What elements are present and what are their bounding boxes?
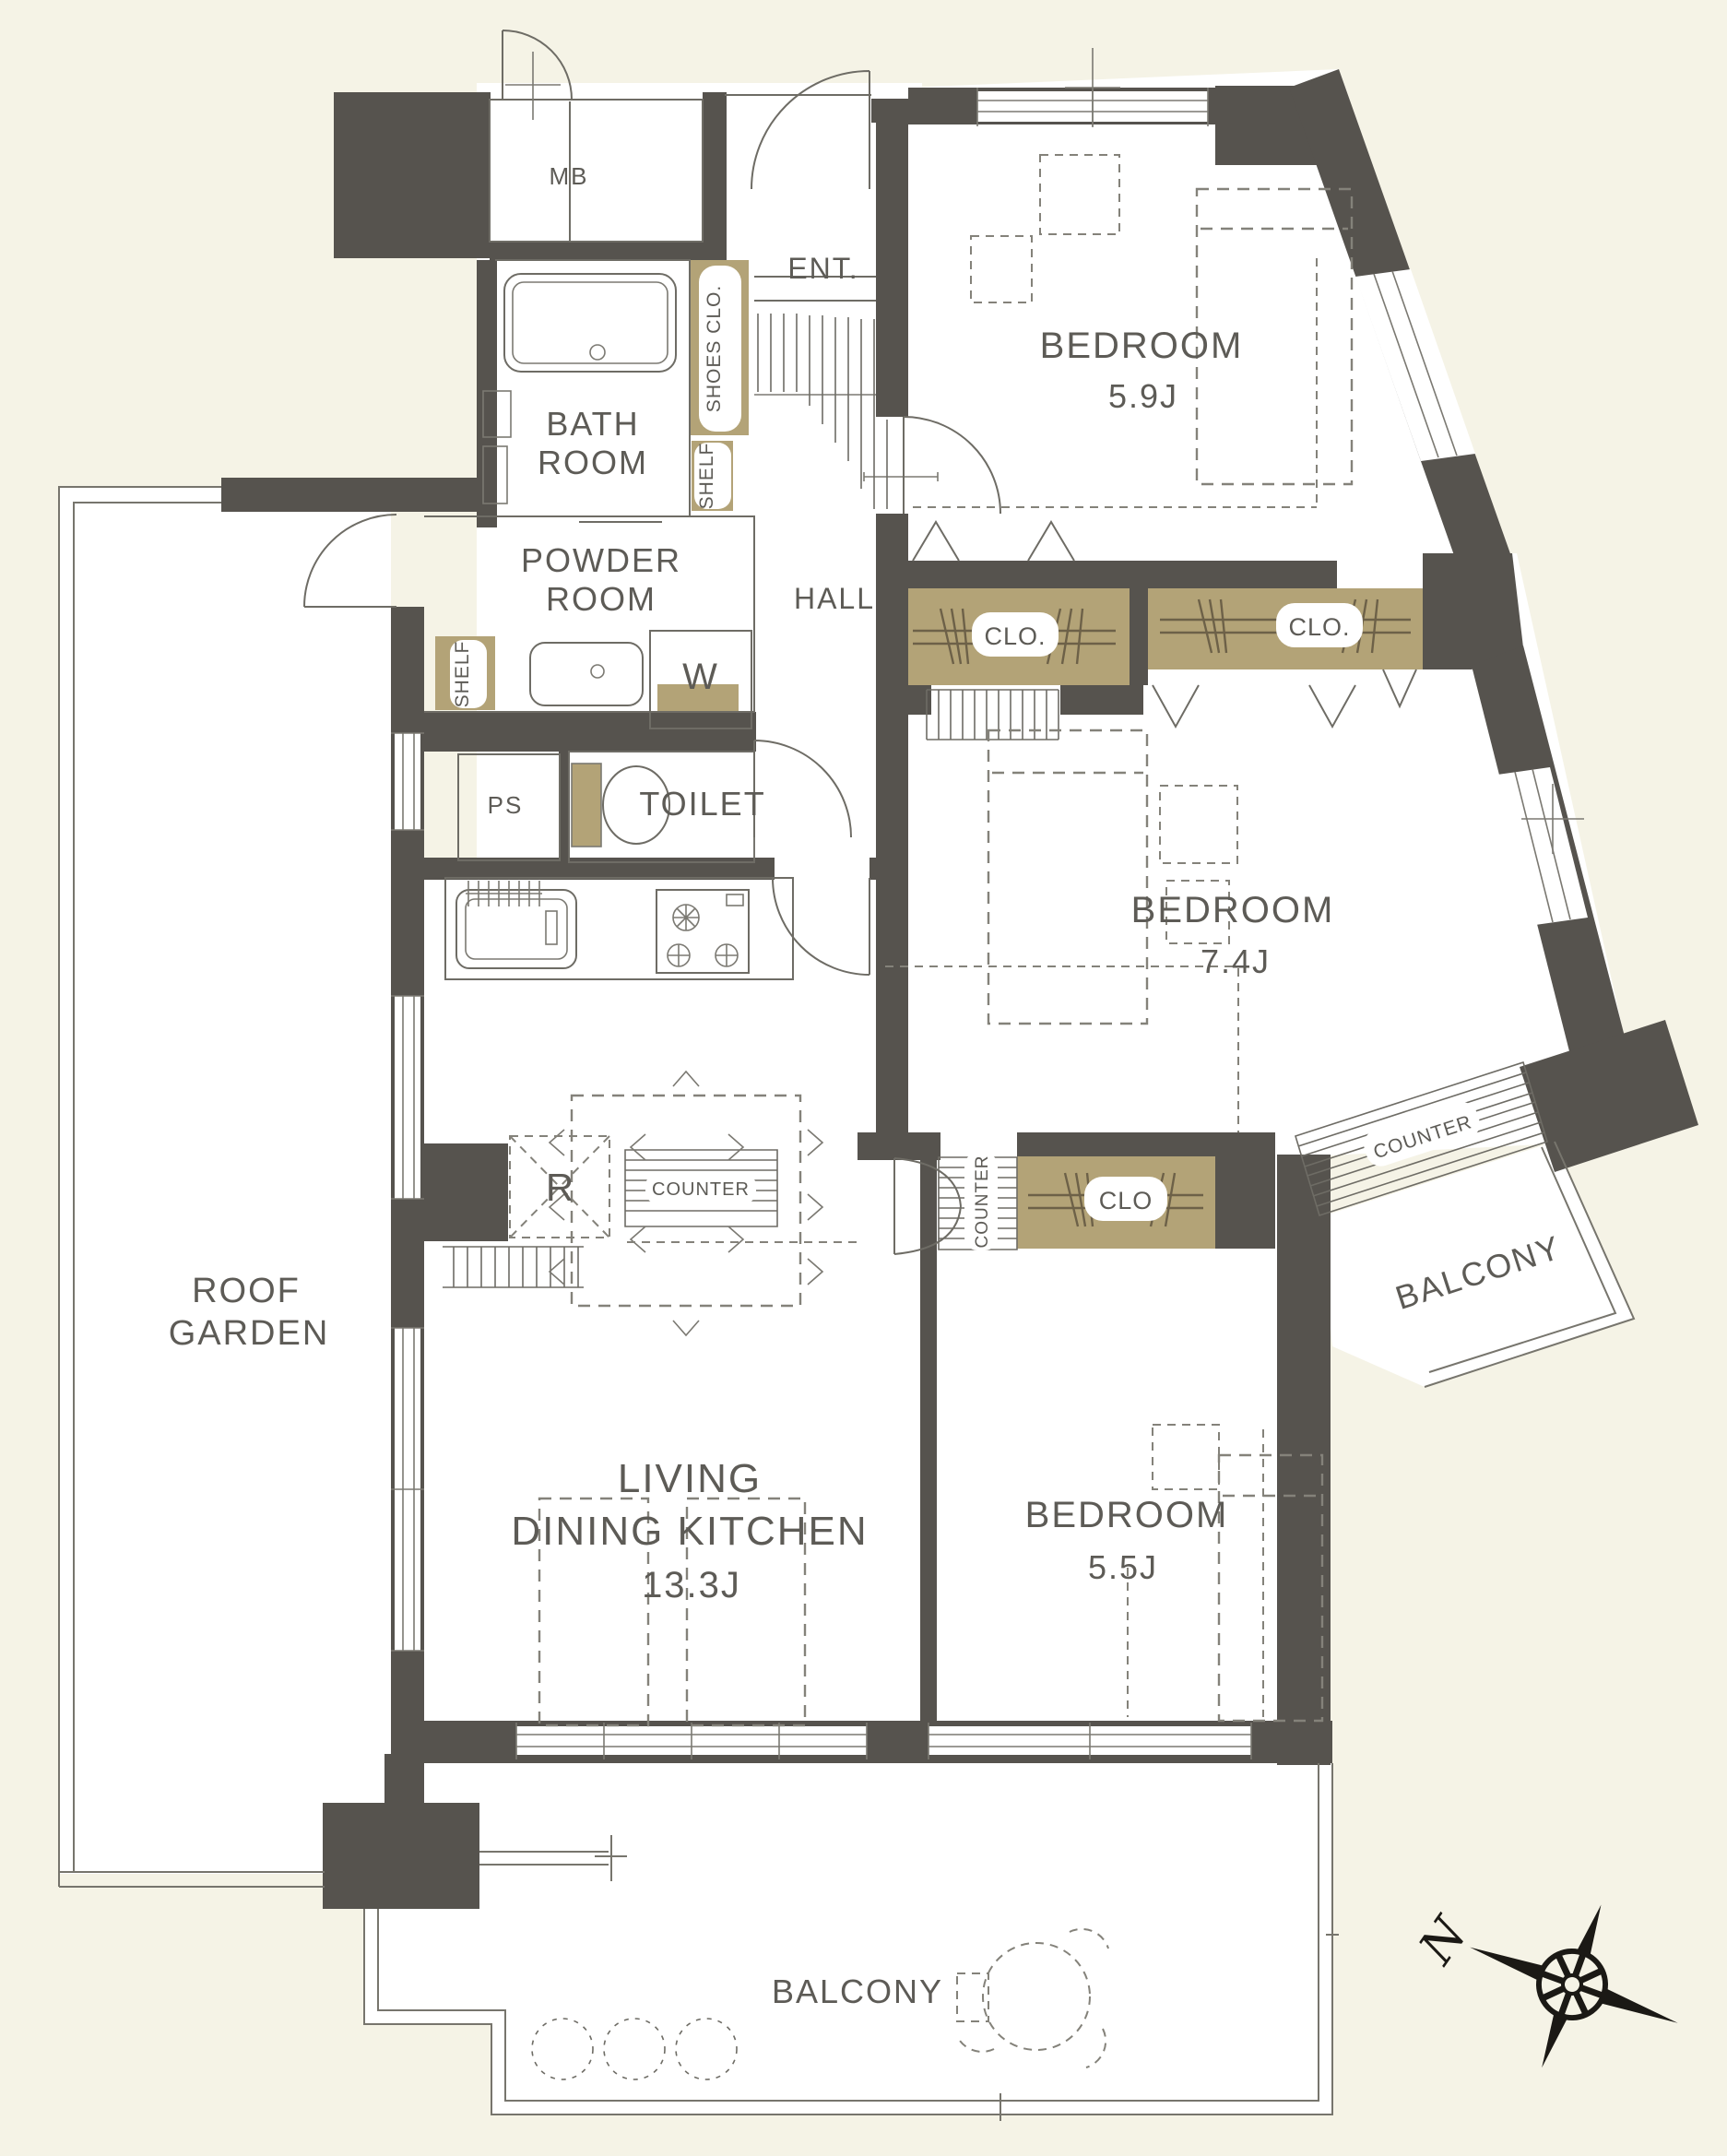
- ldk-label-1: LIVING: [618, 1456, 762, 1501]
- powder-label-2: ROOM: [546, 580, 656, 618]
- ldk-south-window: [516, 1723, 867, 1759]
- ldk-label-2: DINING KITCHEN: [511, 1509, 868, 1554]
- toilet-label: TOILET: [639, 785, 765, 823]
- bedroom3-label: BEDROOM: [1025, 1495, 1229, 1535]
- bedroom3-south-window: [929, 1723, 1251, 1759]
- roof-garden-rail-bottom: [59, 1872, 325, 1887]
- bedroom3-counter-label: COUNTER: [973, 1155, 992, 1249]
- washing-machine-label: W: [682, 657, 719, 697]
- roof-garden-label-1: ROOF: [192, 1272, 301, 1310]
- compass: N: [1408, 1867, 1707, 2106]
- closet2-label: CLO.: [1288, 613, 1350, 641]
- bedroom2-label: BEDROOM: [1131, 890, 1335, 930]
- shelf-lower-label: SHELF: [452, 641, 473, 708]
- toilet-tank: [572, 764, 601, 847]
- bedroom1-size: 5.9J: [1108, 377, 1178, 415]
- ldk-size: 13.3J: [642, 1565, 741, 1605]
- floor-plan-canvas: MB ENT. SHOES CLO. SHELF SHELF BATH ROOM…: [0, 0, 1727, 2156]
- hall-label: HALL: [794, 582, 875, 615]
- compass-north-label: N: [1408, 1906, 1480, 1975]
- powder-label-1: POWDER: [521, 541, 681, 579]
- floor-plan-drawing: MB ENT. SHOES CLO. SHELF SHELF BATH ROOM…: [0, 0, 1727, 2156]
- balcony-south-label: BALCONY: [772, 1972, 943, 2010]
- bath-label-2: ROOM: [538, 444, 648, 481]
- closet1-label: CLO.: [984, 622, 1046, 650]
- bedroom2-size: 7.4J: [1201, 942, 1271, 980]
- meter-box-label: MB: [550, 162, 589, 190]
- pipe-space-label: PS: [488, 791, 524, 819]
- refrigerator-label: R: [546, 1166, 575, 1209]
- bath-label-1: BATH: [546, 405, 639, 443]
- entrance-label: ENT.: [787, 252, 858, 285]
- roof-garden-label-2: GARDEN: [169, 1314, 330, 1353]
- bedroom3-size: 5.5J: [1088, 1548, 1158, 1586]
- bedroom1-label: BEDROOM: [1040, 326, 1244, 366]
- shoes-closet-label: SHOES CLO.: [704, 285, 725, 412]
- closet3-label: CLO: [1099, 1187, 1153, 1214]
- shelf-upper-label: SHELF: [696, 443, 717, 510]
- kitchen-counter-label: COUNTER: [652, 1179, 750, 1200]
